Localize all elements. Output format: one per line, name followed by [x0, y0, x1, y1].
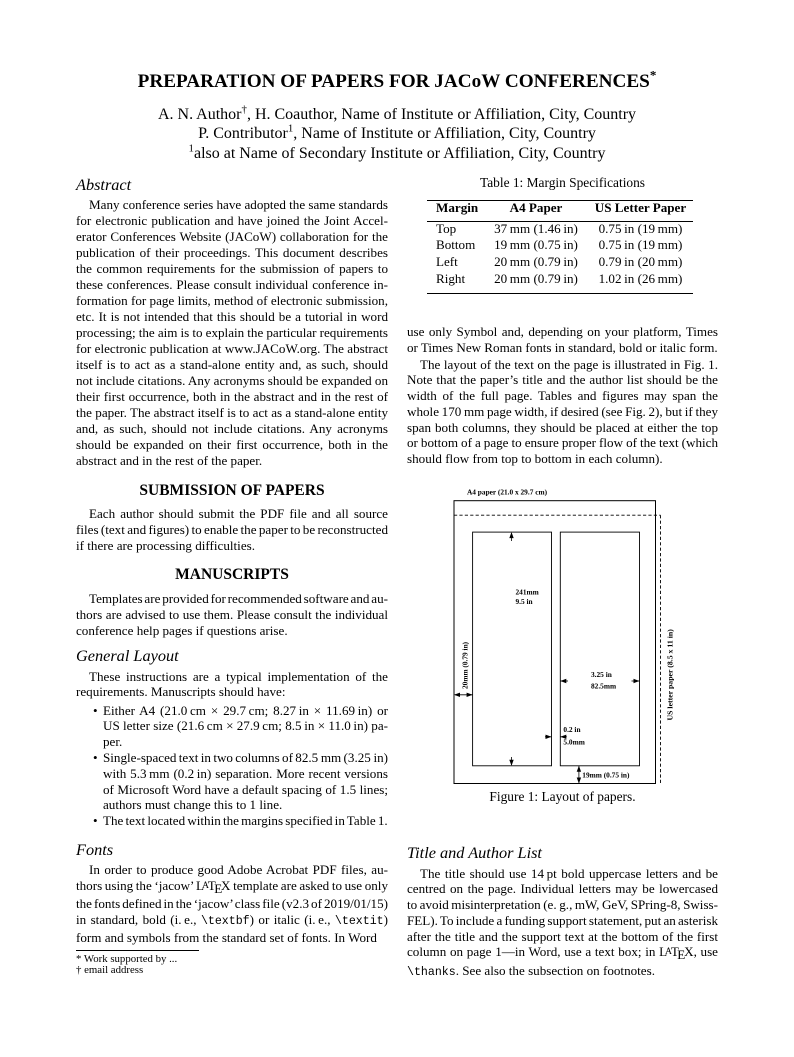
- svg-text:241mm: 241mm: [516, 588, 539, 597]
- svg-text:0.2 in: 0.2 in: [563, 725, 580, 734]
- svg-text:9.5 in: 9.5 in: [516, 597, 533, 606]
- svg-text:3.25 in: 3.25 in: [591, 670, 612, 679]
- svg-text:20mm (0.79 in): 20mm (0.79 in): [460, 641, 469, 689]
- svg-text:US letter paper (8.5 x 11 in): US letter paper (8.5 x 11 in): [666, 629, 675, 721]
- svg-text:A4 paper (21.0 x 29.7 cm): A4 paper (21.0 x 29.7 cm): [467, 487, 548, 496]
- svg-text:82.5mm: 82.5mm: [591, 682, 616, 691]
- svg-text:19mm (0.75 in): 19mm (0.75 in): [582, 771, 630, 780]
- svg-text:5.0mm: 5.0mm: [563, 737, 584, 746]
